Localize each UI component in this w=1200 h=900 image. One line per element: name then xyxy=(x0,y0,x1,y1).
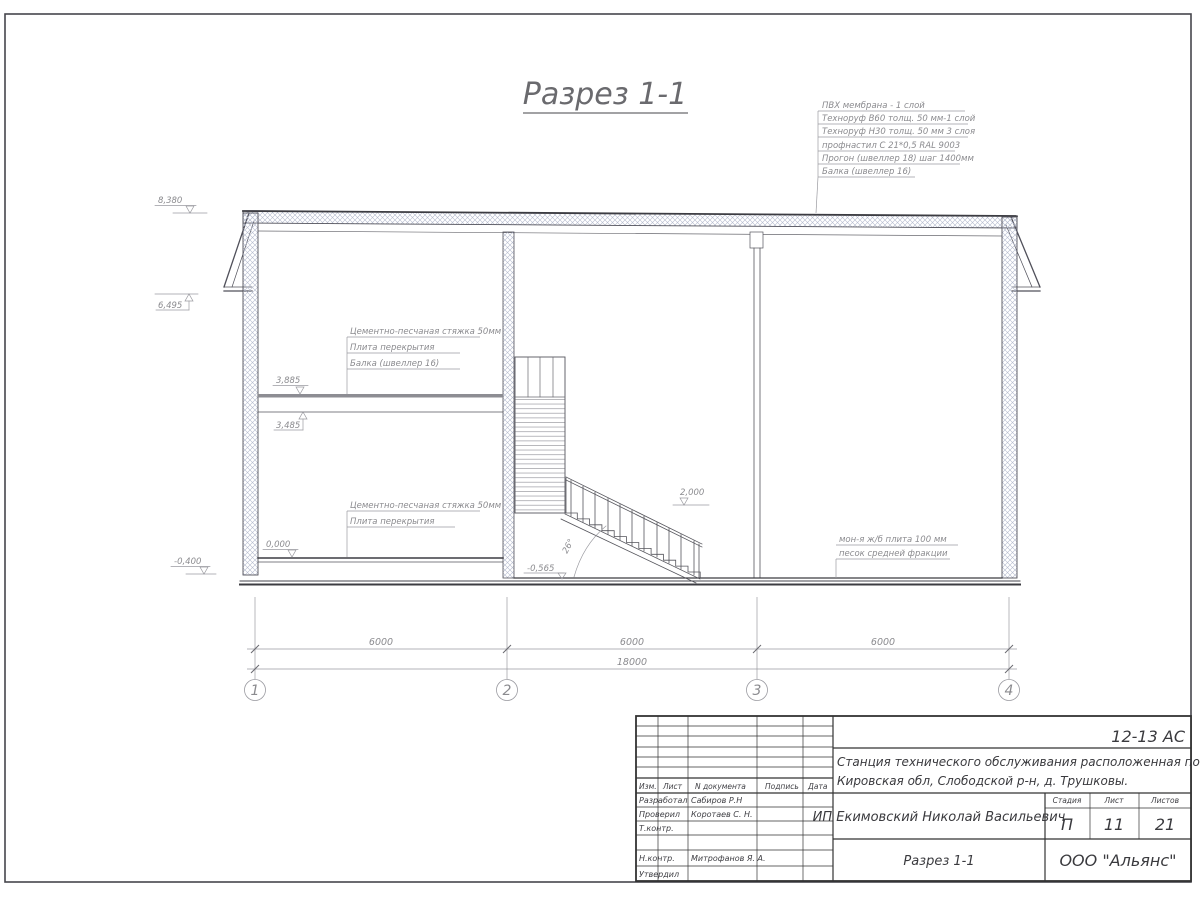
floor2-note-line-1: Цементно-песчаная стяжка 50мм xyxy=(350,327,502,337)
mid-floor-slab xyxy=(258,394,503,412)
role-approved: Утвердил xyxy=(639,870,679,879)
roof-note-line-1: ПВХ мембрана - 1 слой xyxy=(822,101,925,111)
sheets-value: 21 xyxy=(1155,815,1175,834)
dim-span-1: 6000 xyxy=(369,637,393,648)
roof-slab xyxy=(243,211,1017,236)
name-developed: Сабиров Р.Н xyxy=(691,796,742,805)
drawing-title: Разрез 1-1 xyxy=(523,77,688,113)
floor2-note: Цементно-песчаная стяжка 50мм Плита пере… xyxy=(347,327,502,394)
level-slab-top-value: 3,885 xyxy=(276,376,300,386)
dim-span-2: 6000 xyxy=(620,637,644,648)
role-ncontrol: Н.контр. xyxy=(639,854,675,863)
right-wall xyxy=(1002,217,1017,578)
slab-note: мон-я ж/б плита 100 мм песок средней фра… xyxy=(836,535,958,578)
sheet-title: Разрез 1-1 xyxy=(903,854,974,869)
foundation-band xyxy=(240,581,1020,585)
level-minus565: -0,565 xyxy=(524,564,566,579)
sheet-label: Лист xyxy=(1103,796,1124,805)
floor2-note-line-2: Плита перекрытия xyxy=(350,343,434,353)
col-izm: Изм. xyxy=(639,782,657,791)
roof-note-line-3: Техноруф Н30 толщ. 50 мм 3 слоя xyxy=(822,127,975,137)
role-developed: Разработал xyxy=(639,796,687,805)
slab-note-line-2: песок средней фракции xyxy=(839,549,948,559)
dimension-lines: 6000 6000 6000 18000 xyxy=(247,597,1017,679)
role-checked: Проверил xyxy=(639,810,680,819)
level-minus400: -0,400 xyxy=(171,557,216,574)
dim-total: 18000 xyxy=(617,657,647,668)
level-slab-bottom-value: 3,485 xyxy=(276,421,300,431)
drawing-title-text: Разрез 1-1 xyxy=(523,77,687,112)
floor1-note: Цементно-песчаная стяжка 50мм Плита пере… xyxy=(347,501,502,557)
column-axis3 xyxy=(750,232,763,578)
level-slab-bottom: 3,485 xyxy=(274,412,307,431)
blueprint-page: Разрез 1-1 xyxy=(0,0,1200,900)
stair-shaft xyxy=(515,357,565,513)
axis-4-label: 4 xyxy=(1005,683,1014,699)
stair-angle: 26° xyxy=(561,526,606,577)
floor1-note-line-2: Плита перекрытия xyxy=(350,517,434,527)
title-block: Изм. Лист N документа Подпись Дата Разра… xyxy=(636,716,1200,881)
col-date: Дата xyxy=(807,782,828,791)
level-roof: 8,380 xyxy=(155,196,207,213)
axis-1-label: 1 xyxy=(251,683,260,699)
doc-code: 12-13 АС xyxy=(1111,727,1186,746)
level-zero-value: 0,000 xyxy=(266,540,290,550)
col-doc: N документа xyxy=(695,782,746,791)
col-sign: Подпись xyxy=(765,782,799,791)
level-slab-top: 3,885 xyxy=(273,376,308,394)
grid-axes: 1 2 3 4 xyxy=(245,680,1020,701)
name-checked: Коротаев С. Н. xyxy=(691,810,753,819)
roof-note-line-6: Балка (швеллер 16) xyxy=(822,167,911,177)
stair-angle-label: 26° xyxy=(561,537,577,555)
ground-floor-left xyxy=(258,558,503,562)
col-list: Лист xyxy=(662,782,683,791)
roof-note-line-4: профнастил С 21*0,5 RAL 9003 xyxy=(822,141,960,151)
roof-note-line-5: Прогон (швеллер 18) шаг 1400мм xyxy=(822,154,974,164)
stage-label: Стадия xyxy=(1053,796,1082,805)
level-minus400-value: -0,400 xyxy=(174,557,201,567)
level-eave: 6,495 xyxy=(155,294,198,311)
level-landing-value: 2,000 xyxy=(680,488,704,498)
stair-wall-axis2 xyxy=(503,232,514,578)
dim-span-3: 6000 xyxy=(871,637,895,648)
level-zero: 0,000 xyxy=(263,540,298,557)
client-name: ИП Екимовский Николай Васильевич xyxy=(813,810,1066,825)
stage-value: П xyxy=(1061,815,1073,834)
level-minus565-value: -0,565 xyxy=(527,564,554,574)
annotations: ПВХ мембрана - 1 слой Техноруф В60 толщ.… xyxy=(155,101,1020,701)
slab-note-line-1: мон-я ж/б плита 100 мм xyxy=(839,535,947,545)
left-wall xyxy=(243,213,258,575)
role-tcontrol: Т.контр. xyxy=(639,824,674,833)
floor1-note-line-1: Цементно-песчаная стяжка 50мм xyxy=(350,501,502,511)
axis-2-label: 2 xyxy=(503,683,512,699)
section-drawing-svg: Разрез 1-1 xyxy=(0,0,1200,900)
sheet-value: 11 xyxy=(1104,815,1124,834)
sheets-label: Листов xyxy=(1150,796,1179,805)
name-ncontrol: Митрофанов Я. А. xyxy=(691,854,766,863)
floor2-note-line-3: Балка (швеллер 16) xyxy=(350,359,439,369)
building-section: 26° xyxy=(224,211,1040,585)
level-eave-value: 6,495 xyxy=(158,301,182,311)
roof-note-line-2: Техноруф В60 толщ. 50 мм-1 слой xyxy=(822,114,976,124)
axis-3-label: 3 xyxy=(753,683,762,699)
roof-note: ПВХ мембрана - 1 слой Техноруф В60 толщ.… xyxy=(816,101,976,213)
level-roof-value: 8,380 xyxy=(158,196,182,206)
object-line-2: Кировская обл, Слободской р-н, д. Трушко… xyxy=(837,774,1128,788)
object-line-1: Станция технического обслуживания распол… xyxy=(837,755,1200,769)
company-name: ООО "Альянс" xyxy=(1059,851,1176,870)
level-landing: 2,000 xyxy=(673,488,709,505)
